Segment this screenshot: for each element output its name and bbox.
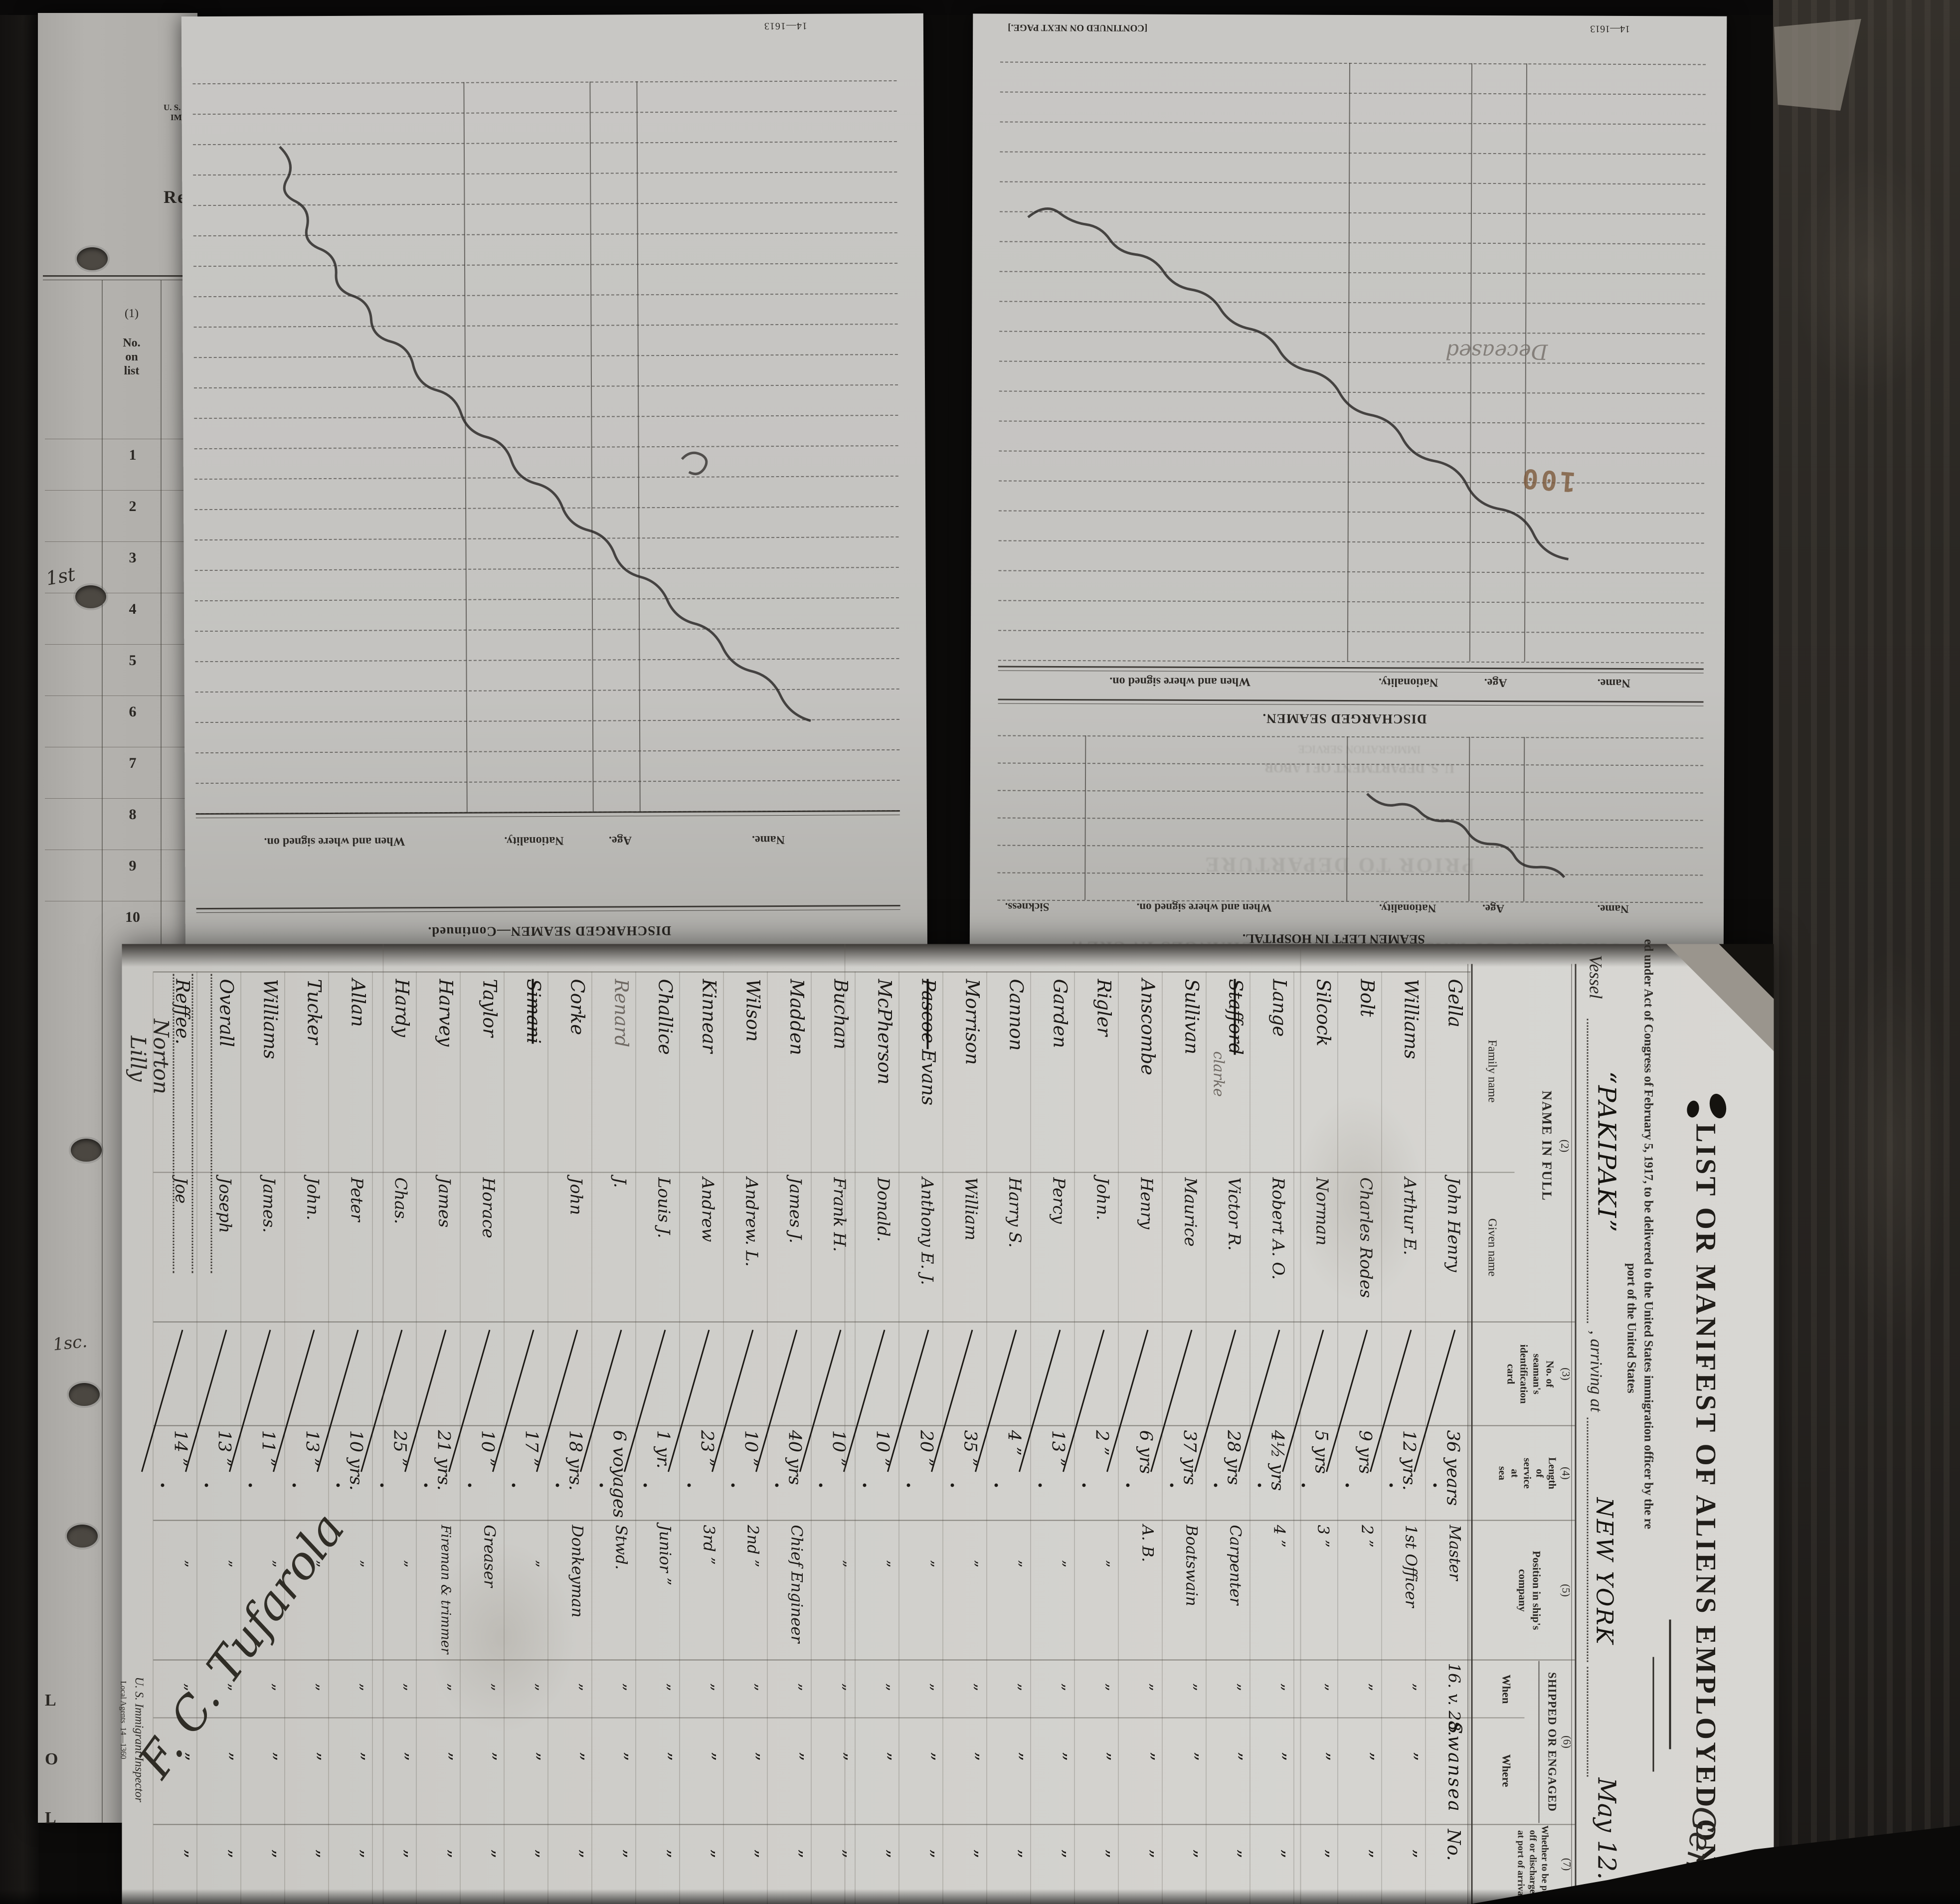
local-agents-label: Local Agents 14—1360	[119, 1681, 128, 1759]
manifest-row-family: Lange	[1269, 979, 1290, 1171]
agent-name-handwritten: Norton Lilly	[127, 1019, 173, 1094]
manifest-row-family: Madden	[786, 979, 808, 1171]
manifest-row-idcard-dot	[1258, 1484, 1261, 1487]
list-row-number: 3	[113, 549, 153, 566]
manifest-column-rule	[154, 1520, 1576, 1521]
manifest-row-rule	[241, 972, 241, 1904]
when-sublabel: When	[1500, 1661, 1513, 1718]
edge-letter: O	[45, 1750, 58, 1769]
manifest-row-given: William	[962, 1178, 981, 1320]
manifest-row-idcard-dot	[951, 1484, 954, 1487]
title-ink-blot-2	[1686, 1100, 1701, 1119]
manifest-row-family: Sullivan	[1181, 979, 1203, 1171]
manifest-row-rule	[1031, 972, 1031, 1904]
manifest-row-idcard-dot	[819, 1484, 823, 1487]
manifest-row-rule	[504, 972, 505, 1904]
manifest-row-family: Garden	[1050, 979, 1071, 1171]
manifest-row-service: 40 yrs	[785, 1430, 805, 1518]
manifest-row-rule	[372, 972, 373, 1904]
manifest-row-service: 36 years	[1443, 1430, 1463, 1518]
manifest-row-family: Wilson	[742, 979, 764, 1171]
manifest-row-given: Peter	[348, 1178, 367, 1320]
manifest-row-position: 2nd ”	[744, 1525, 761, 1657]
manifest-subtitle: ed under Act of Congress of February 5, …	[1641, 939, 1655, 1904]
list-row-number: 1	[113, 447, 153, 464]
manifest-row-family: Morrison	[962, 979, 983, 1171]
manifest-row-position: A. B.	[1139, 1525, 1156, 1657]
manifest-row-rule	[197, 972, 197, 1904]
manifest-row-paid: No.	[1443, 1829, 1464, 1899]
punch-hole	[71, 1139, 102, 1162]
col5-label: Position in ship'scompany	[1516, 1522, 1544, 1660]
manifest-row-idcard-dot	[1302, 1484, 1305, 1487]
manifest-row-rule	[416, 972, 417, 1904]
manifest-row-position: Junior ”	[657, 1525, 673, 1657]
manifest-row-family: Williams	[260, 979, 281, 1171]
discharged-seamen-page: [CONTINUED ON NEXT PAGE.] 14—1613 When a…	[970, 13, 1727, 974]
list-row-line	[45, 850, 194, 850]
manifest-row-idcard-dot	[775, 1484, 779, 1487]
manifest-row-idcard-dot	[205, 1484, 208, 1487]
manifest-row-given: Joe	[172, 1178, 191, 1320]
manifest-row-rule	[1206, 972, 1207, 1904]
manifest-row-given: James.	[260, 1178, 279, 1320]
manifest-row-family: Pascoe Evans	[918, 979, 939, 1171]
vessel-name-handwritten: “PAKIPAKI”	[1593, 1071, 1621, 1234]
manifest-row-idcard-dot	[424, 1484, 428, 1487]
margin-scribble-bottom: 1sc.	[52, 1332, 88, 1355]
manifest-row-given: Robert A. O.	[1269, 1178, 1288, 1320]
manifest-row-family: Stafford	[1225, 979, 1247, 1171]
manifest-row-given: Victor R.	[1225, 1178, 1245, 1320]
port-handwritten: NEW YORK	[1592, 1498, 1618, 1646]
col3-number: (3)	[1560, 1323, 1573, 1425]
vessel-label: Vessel	[1586, 955, 1606, 999]
edge-letter: L	[45, 1809, 56, 1828]
manifest-row-service: 11 ”	[258, 1430, 278, 1518]
manifest-row-given: Joseph	[216, 1178, 235, 1320]
manifest-row-position: 1st Officer	[1403, 1525, 1419, 1657]
manifest-row-family: Reffee.	[172, 979, 193, 1171]
manifest-row-service: 20 ”	[916, 1430, 936, 1518]
manifest-column-rule	[154, 1660, 1576, 1661]
manifest-column-rule	[154, 1425, 1576, 1426]
list-row-line	[45, 798, 194, 799]
manifest-row-idcard-dot	[1214, 1484, 1218, 1487]
punch-hole	[69, 1383, 100, 1406]
manifest-row-position: Master	[1446, 1525, 1463, 1657]
manifest-row-family-pencil-note: clarke	[1211, 1051, 1228, 1097]
manifest-row-given: Andrew. L.	[742, 1178, 762, 1320]
manifest-row-idcard-dot	[293, 1484, 296, 1487]
manifest-row-given: Frank H.	[830, 1178, 850, 1320]
manifest-row-service: 28 yrs	[1224, 1430, 1244, 1518]
manifest-row-family: Anscombe	[1137, 979, 1159, 1171]
manifest-row-family: Gella	[1444, 979, 1466, 1171]
list-row-line	[45, 541, 194, 542]
list-row-line	[45, 747, 194, 747]
manifest-row-service: 35 ”	[960, 1430, 980, 1518]
manifest-row-rule	[636, 972, 636, 1904]
manifest-row-service: 13 ”	[1048, 1430, 1068, 1518]
manifest-row-idcard-dot	[468, 1484, 472, 1487]
manifest-row-service: 14 ”	[171, 1430, 190, 1518]
manifest-row-family: Harvey	[435, 979, 457, 1171]
list-row-line	[45, 490, 194, 491]
manifest-row-family: Hardy	[391, 979, 413, 1171]
col5-number: (5)	[1560, 1522, 1573, 1660]
manifest-row-idcard-dot	[556, 1484, 559, 1487]
manifest-row-idcard-dot	[1170, 1484, 1174, 1487]
title-underline-1	[1669, 1620, 1671, 1749]
manifest-row-family: Tucker	[304, 979, 325, 1171]
left-strip-top-rule	[43, 275, 195, 280]
manifest-column-rule	[154, 1322, 1576, 1323]
manifest-row-given: Henry	[1137, 1178, 1157, 1320]
manifest-row-given: Chas.	[391, 1178, 411, 1320]
list-row-line	[45, 439, 194, 439]
manifest-row-rule	[855, 972, 856, 1904]
manifest-row-given: John.	[304, 1178, 323, 1320]
manifest-row-given: Andrew	[699, 1178, 718, 1320]
manifest-row-rule	[548, 972, 548, 1904]
paper-curl-top-right	[1774, 19, 1869, 119]
manifest-row-service: 5 yrs	[1311, 1430, 1331, 1518]
edge-letter: L	[45, 1691, 56, 1710]
manifest-row-rule	[460, 972, 461, 1904]
col2-number: (2)	[1559, 972, 1572, 1321]
manifest-row-family: Challice	[655, 979, 676, 1171]
manifest-row-family: Corke	[567, 979, 588, 1171]
manifest-row-rule	[329, 972, 329, 1904]
manifest-row-rule	[680, 972, 680, 1904]
list-row-line	[45, 901, 194, 901]
scan-left-edge	[0, 0, 39, 1904]
manifest-row-family: Cannon	[1006, 979, 1027, 1171]
manifest-row-rule	[899, 972, 899, 1904]
manifest-row-position: Boatswain	[1183, 1525, 1200, 1657]
manifest-column-rule	[154, 972, 1471, 973]
manifest-row-idcard-dot	[1346, 1484, 1349, 1487]
manifest-row-idcard-dot	[688, 1484, 691, 1487]
manifest-row-service: 2 ”	[1092, 1430, 1112, 1518]
manifest-row-service: 10 ”	[741, 1430, 761, 1518]
manifest-row-family: Rigler	[1093, 979, 1115, 1171]
manifest-row-given: John	[567, 1178, 586, 1320]
manifest-row-service: 37 yrs	[1180, 1430, 1200, 1518]
manifest-row-position: 4 ”	[1271, 1525, 1287, 1657]
manifest-row-idcard-dot	[512, 1484, 516, 1487]
manifest-row-position: Carpenter	[1227, 1525, 1244, 1657]
manifest-row-service: 6 yrs	[1136, 1430, 1156, 1518]
manifest-row-position: Stwd.	[613, 1525, 629, 1657]
list-row-number: 6	[113, 703, 153, 720]
manifest-row-rule	[1118, 972, 1119, 1904]
manifest-row-family: Renard	[611, 979, 632, 1171]
manifest-row-service: 12 yrs.	[1399, 1430, 1419, 1518]
manifest-row-family: Simani	[523, 979, 544, 1171]
list-row-number: 10	[113, 909, 153, 926]
col6-number: (6)	[1561, 1661, 1574, 1823]
family-name-sublabel: Family name	[1485, 972, 1499, 1171]
arriving-at-label: , arriving at	[1587, 1331, 1605, 1412]
manifest-row-service: 23 ”	[697, 1430, 717, 1518]
manifest-page: LIST OR MANIFEST OF ALIENS EMPLOYED ON T…	[122, 944, 1774, 1904]
manifest-row-rule	[1250, 972, 1250, 1904]
punch-hole	[77, 247, 108, 270]
manifest-row-idcard-dot	[161, 1484, 165, 1487]
where-sublabel: Where	[1500, 1719, 1513, 1823]
manifest-row-service: 4 ”	[1004, 1430, 1024, 1518]
manifest-row-position: 3rd ”	[701, 1525, 717, 1657]
manifest-row-given: John Henry	[1444, 1178, 1464, 1320]
col1-number: (1)	[103, 307, 161, 321]
manifest-row-given: James J.	[786, 1178, 806, 1320]
scan-top-edge	[0, 0, 1960, 15]
manifest-row-given: J.	[611, 1178, 630, 1320]
manifest-row-rule	[1425, 972, 1426, 1904]
list-row-line	[45, 695, 194, 696]
manifest-row-service: 17 ”	[522, 1430, 541, 1518]
col4-label: Lengthofserviceatsea	[1496, 1427, 1559, 1520]
manifest-row-service: 6 voyages	[609, 1430, 629, 1518]
manifest-row-family: Kinnear	[699, 979, 720, 1171]
manifest-row-position: 3 ”	[1315, 1525, 1331, 1657]
col3-label: No. ofseaman'sidentificationcard	[1505, 1323, 1557, 1425]
manifest-row-given: John.	[1093, 1178, 1113, 1320]
manifest-row-idcard-dot	[995, 1484, 998, 1487]
margin-scribble-top: 1st	[44, 563, 77, 590]
manifest-row-given: James	[435, 1178, 455, 1320]
manifest-row-service: 10 ”	[829, 1430, 849, 1518]
manifest-row-where: Swansea	[1444, 1722, 1465, 1822]
manifest-row-idcard-dot	[249, 1484, 252, 1487]
manifest-row-given: Louis J.	[655, 1178, 674, 1320]
manifest-row-rule	[1162, 972, 1163, 1904]
manifest-row-given: Anthony E. J.	[918, 1178, 937, 1320]
manifest-row-rule	[1294, 972, 1294, 1904]
title-ink-blot-1	[1707, 1092, 1729, 1120]
list-row-number: 8	[113, 806, 153, 823]
manifest-row-rule	[592, 972, 592, 1904]
manifest-row-idcard-dot	[600, 1484, 603, 1487]
col2-label: NAME IN FULL	[1539, 972, 1555, 1321]
punch-hole	[75, 585, 106, 608]
manifest-row-given: Horace	[479, 1178, 499, 1320]
list-row-line	[45, 593, 194, 593]
manifest-row-rule	[943, 972, 943, 1904]
list-row-number: 9	[113, 858, 153, 874]
punch-hole	[67, 1525, 98, 1548]
manifest-row-service: 1 yr.	[653, 1430, 673, 1518]
manifest-row-position: Chief Engineer	[788, 1525, 805, 1657]
manifest-row-rule	[1074, 972, 1075, 1904]
manifest-row-idcard-dot	[1082, 1484, 1086, 1487]
manifest-row-family: Buchan	[830, 979, 852, 1171]
manifest-row-given: Percy	[1050, 1178, 1069, 1320]
manifest-row-idcard-dot	[337, 1484, 340, 1487]
manifest-row-service: 13 ”	[214, 1430, 234, 1518]
col1-label: No.onlist	[103, 336, 161, 378]
manifest-row-idcard-dot	[907, 1484, 910, 1487]
manifest-row-given: Harry S.	[1006, 1178, 1025, 1320]
manifest-row-rule	[1469, 972, 1470, 1904]
manifest-row-idcard-dot	[1433, 1484, 1437, 1487]
manifest-row-service: 25 ”	[390, 1430, 410, 1518]
list-row-number: 2	[113, 498, 153, 515]
manifest-title: LIST OR MANIFEST OF ALIENS EMPLOYED ON T…	[1690, 1124, 1722, 1904]
manifest-subtitle-2: port of the United States	[1624, 1263, 1638, 1393]
manifest-row-family: Overall	[216, 979, 237, 1171]
manifest-row-idcard-dot	[1039, 1484, 1042, 1487]
manifest-row-position: 2 ”	[1359, 1525, 1375, 1657]
manifest-row-rule	[811, 972, 812, 1904]
manifest-row-idcard-dot	[863, 1484, 867, 1487]
manifest-row-rule	[285, 972, 285, 1904]
manifest-row-family: Taylor	[479, 979, 501, 1171]
col4-number: (4)	[1560, 1427, 1573, 1520]
manifest-row-rule	[767, 972, 768, 1904]
manifest-row-service: 10 ”	[873, 1430, 892, 1518]
manifest-row-family: Allan	[348, 979, 369, 1171]
discharged-seamen-continued-page: 14—1613 When and where signed on.Nationa…	[181, 13, 927, 975]
manifest-row-given: Maurice	[1181, 1178, 1201, 1320]
col6-label: SHIPPED OR ENGAGED	[1546, 1661, 1559, 1823]
scanned-document-screenshot: U. S. DEPAR IMMIGR Requir (1) No.onlist …	[0, 0, 1960, 1904]
manifest-outer: LIST OR MANIFEST OF ALIENS EMPLOYED ON T…	[122, 944, 1774, 1904]
manifest-row-family: McPherson	[874, 979, 895, 1171]
manifest-row-idcard-dot	[644, 1484, 647, 1487]
agents-form-number: 14—1360	[119, 1727, 128, 1759]
pencil-squiggle-line-page-b	[970, 13, 1727, 974]
given-name-sublabel: Given name	[1485, 1174, 1499, 1322]
list-row-number: 7	[113, 755, 153, 772]
manifest-row-rule	[723, 972, 724, 1904]
list-row-number: 5	[113, 652, 153, 669]
manifest-row-idcard-dot	[1390, 1484, 1393, 1487]
manifest-row-given: Donald.	[874, 1178, 893, 1320]
manifest-row-idcard-dot	[1126, 1484, 1130, 1487]
manifest-row-service: 9 yrs	[1355, 1430, 1375, 1518]
manifest-row-rule	[987, 972, 987, 1904]
manifest-row-service: 21 yrs.	[434, 1430, 454, 1518]
manifest-row-service: 18 yrs.	[565, 1430, 585, 1518]
manifest-row-service: 4½ yrs	[1267, 1430, 1287, 1518]
manifest-row-idcard-dot	[731, 1484, 735, 1487]
pencil-squiggle-line-page-a	[181, 13, 927, 975]
list-row-line	[45, 644, 194, 645]
scan-right-strip	[1773, 0, 1960, 1904]
list-row-number: 4	[113, 601, 153, 618]
manifest-row-service: 10 ”	[478, 1430, 498, 1518]
